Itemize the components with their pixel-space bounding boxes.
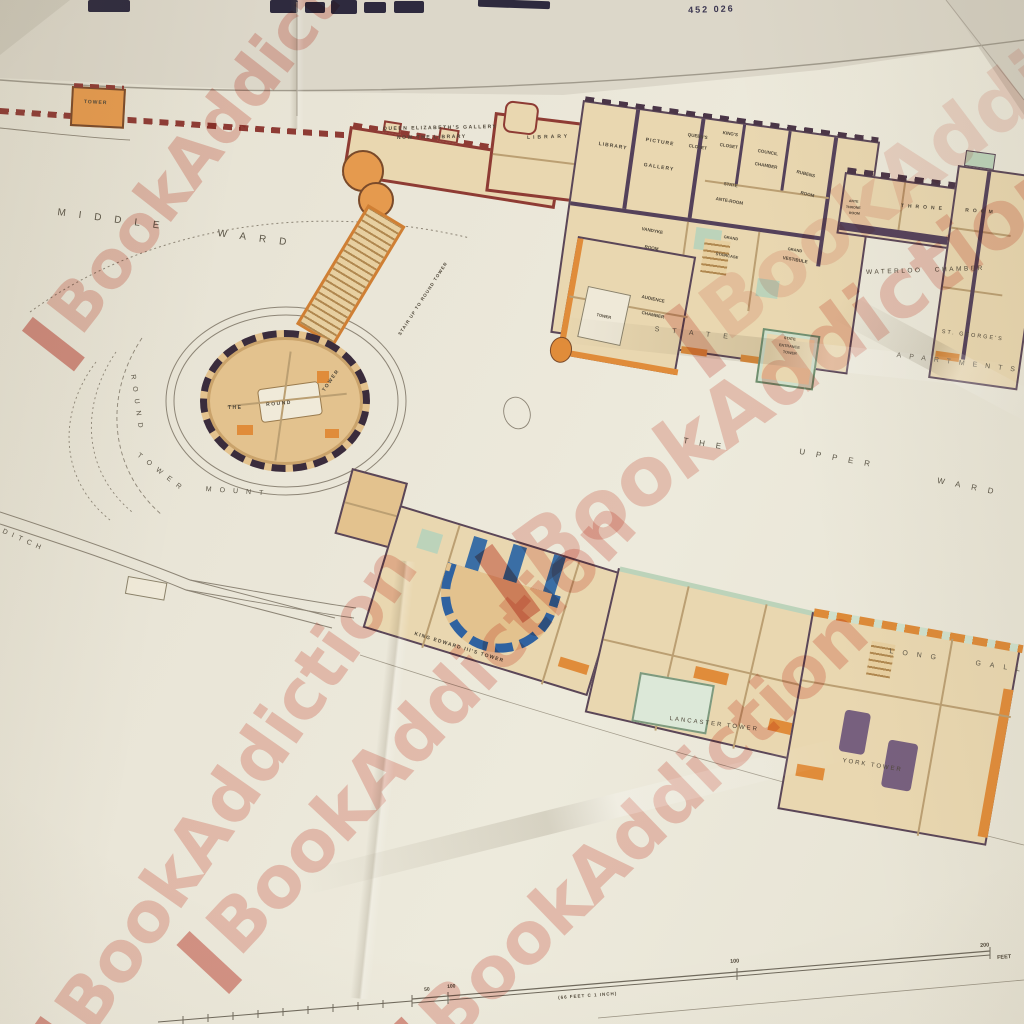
scale-bar-line-bottom <box>412 955 990 1003</box>
york-dark-room-1 <box>838 709 871 755</box>
east-range-green <box>964 150 996 170</box>
se-orange-2 <box>795 764 825 781</box>
scale-ticks <box>183 947 990 1024</box>
scale-tick-50: 50 <box>424 988 430 993</box>
label-round-the: THE <box>228 406 243 411</box>
photographed-castle-plan: 452 026 TOW <box>0 0 1024 1024</box>
south-range-east <box>777 612 1021 846</box>
se-stair <box>866 641 896 679</box>
south-orange-1 <box>558 657 590 675</box>
se-partition-1 <box>802 679 1011 717</box>
mount-contour-2 <box>91 352 132 512</box>
ditch-line-2 <box>0 524 332 628</box>
ne-green-court-2 <box>755 278 779 299</box>
ne-wall-1 <box>622 109 640 209</box>
mount-contour-1 <box>69 362 110 520</box>
scale-tick-100-left: 100 <box>447 984 456 990</box>
scale-unit: FEET <box>997 955 1011 961</box>
se-partition-2 <box>917 639 953 836</box>
label-ante-throne-1: ANTE <box>849 200 859 204</box>
lower-fold-line <box>598 980 1024 1018</box>
top-right-sheet-edge <box>946 0 1024 100</box>
ne-partition-3 <box>747 232 760 311</box>
northwest-tower <box>70 86 126 129</box>
walk-line-1 <box>190 580 356 608</box>
scale-bar-left-extension <box>158 1001 412 1022</box>
scale-tick-100-mid: 100 <box>730 959 740 965</box>
octagon-tower <box>502 100 540 136</box>
plan-sheet-top-edge <box>0 40 1024 91</box>
nw-path-line <box>0 128 130 140</box>
label-ante-throne-3: ROOM <box>849 212 860 216</box>
south-green-1 <box>416 528 443 554</box>
scale-tick-200: 200 <box>980 943 990 949</box>
ditch-line-1 <box>0 512 335 618</box>
round-tower-room-1 <box>237 425 253 435</box>
ne-wall-4 <box>780 131 791 191</box>
round-tower-room-3 <box>325 429 339 438</box>
scale-bar-line-top <box>412 951 990 999</box>
ne-wall-5 <box>816 137 838 266</box>
statue-oval <box>500 394 535 432</box>
connector-partition <box>345 501 401 517</box>
